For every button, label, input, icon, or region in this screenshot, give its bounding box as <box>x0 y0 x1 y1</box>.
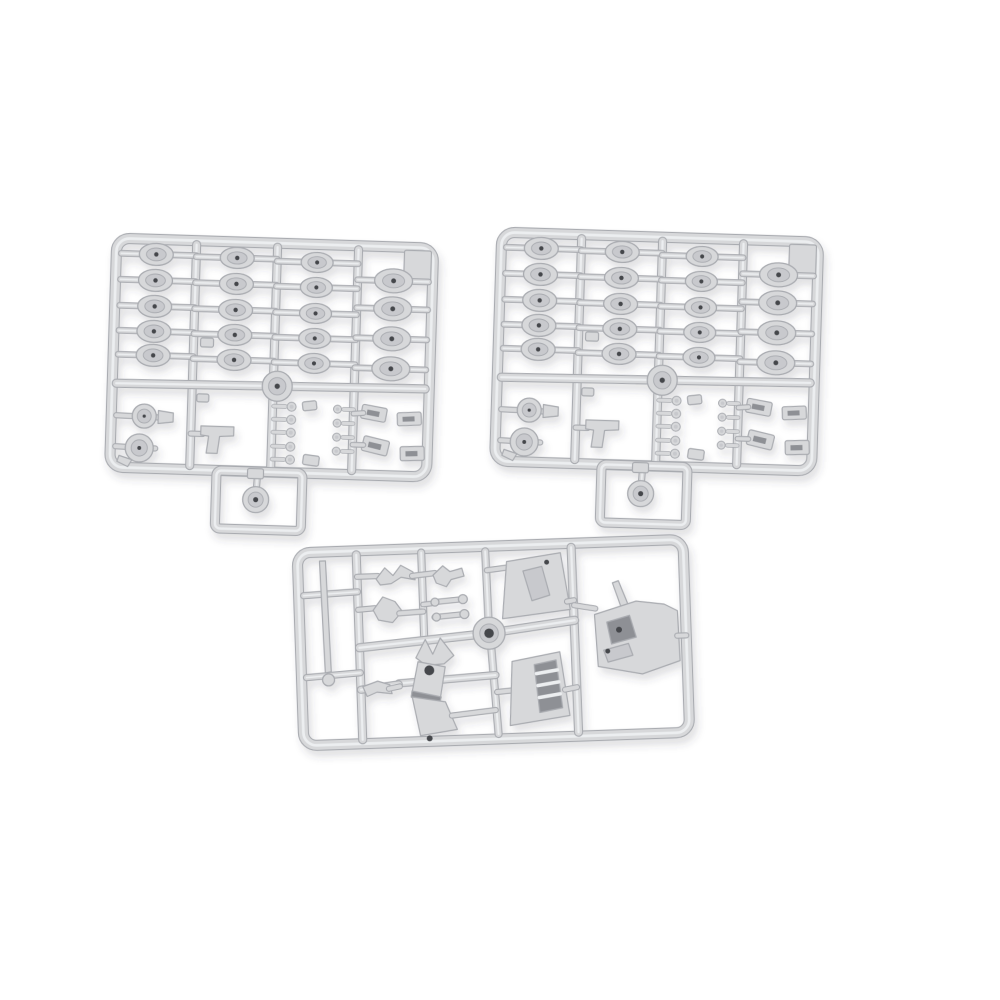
tab-sprocket-wheel <box>242 486 269 513</box>
bracket-part <box>400 446 425 462</box>
exhaust-part <box>373 596 403 623</box>
sprue-bottom <box>297 539 690 745</box>
sprue-scene <box>0 0 1000 1000</box>
turret-ring-disc <box>473 617 506 650</box>
sprocket-disc <box>125 434 154 463</box>
tab-sprocket-wheel <box>627 480 654 507</box>
gun-barrel <box>319 561 331 673</box>
suspension-bracket <box>585 420 619 448</box>
center-hub-disc <box>647 365 678 396</box>
bracket-part <box>397 411 422 426</box>
idler-disc <box>517 398 542 423</box>
sprue-top-right <box>493 232 819 529</box>
idler-disc <box>132 404 157 429</box>
casemate-part <box>594 600 680 676</box>
bracket-part <box>782 405 807 420</box>
sprocket-disc <box>510 428 539 457</box>
center-hub-disc <box>262 371 293 402</box>
product-photo <box>0 0 1000 1000</box>
suspension-bracket <box>200 426 234 454</box>
sprue-top-left <box>108 238 434 535</box>
bracket-part <box>785 440 810 456</box>
muzzle-tip <box>322 674 334 686</box>
fitting-part <box>433 565 465 587</box>
